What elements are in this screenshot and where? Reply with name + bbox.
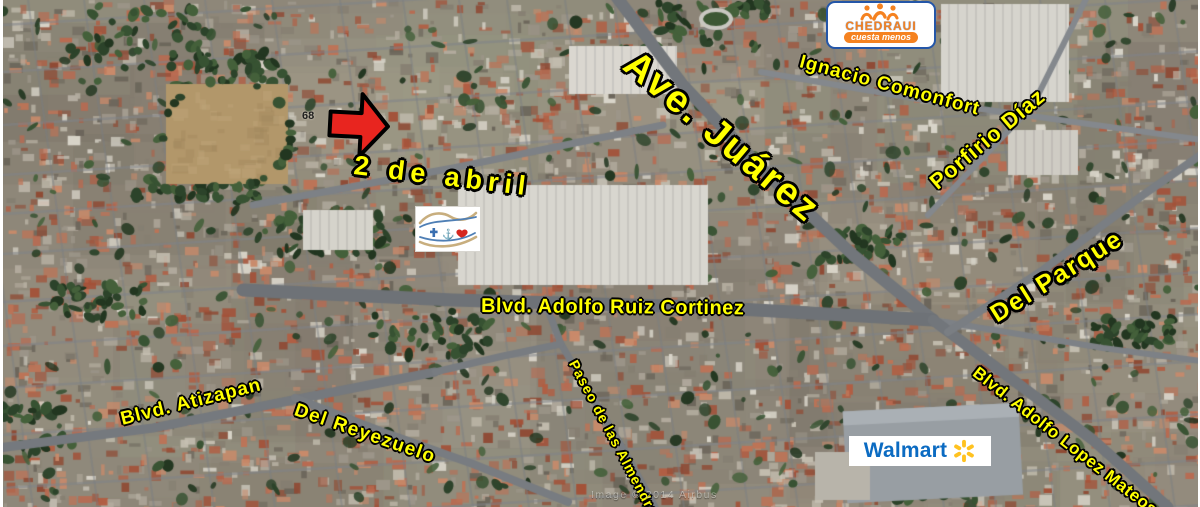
doves-emblem-logo: ⚓ <box>415 206 481 252</box>
street-label-ruiz-cortinez: Blvd. Adolfo Ruiz Cortinez <box>481 296 745 318</box>
chedraui-brand-text: CHEDRAUI <box>845 21 916 31</box>
chedraui-tagline: cuesta menos <box>844 32 918 43</box>
imagery-watermark: Image © 2014 Airbus <box>591 489 718 501</box>
walmart-logo: Walmart <box>849 436 991 466</box>
walmart-brand-text: Walmart <box>864 439 947 463</box>
street-number-label: 68 <box>302 110 314 122</box>
aerial-map: 68 Ave. Juárez Ignacio Comonfort Porfiri… <box>0 0 1200 507</box>
doves-emblem-icon: ⚓ <box>416 207 480 251</box>
anchor-icon: ⚓ <box>442 228 454 241</box>
walmart-spark-icon <box>952 439 976 463</box>
chedraui-logo: CHEDRAUI cuesta menos <box>826 1 936 49</box>
